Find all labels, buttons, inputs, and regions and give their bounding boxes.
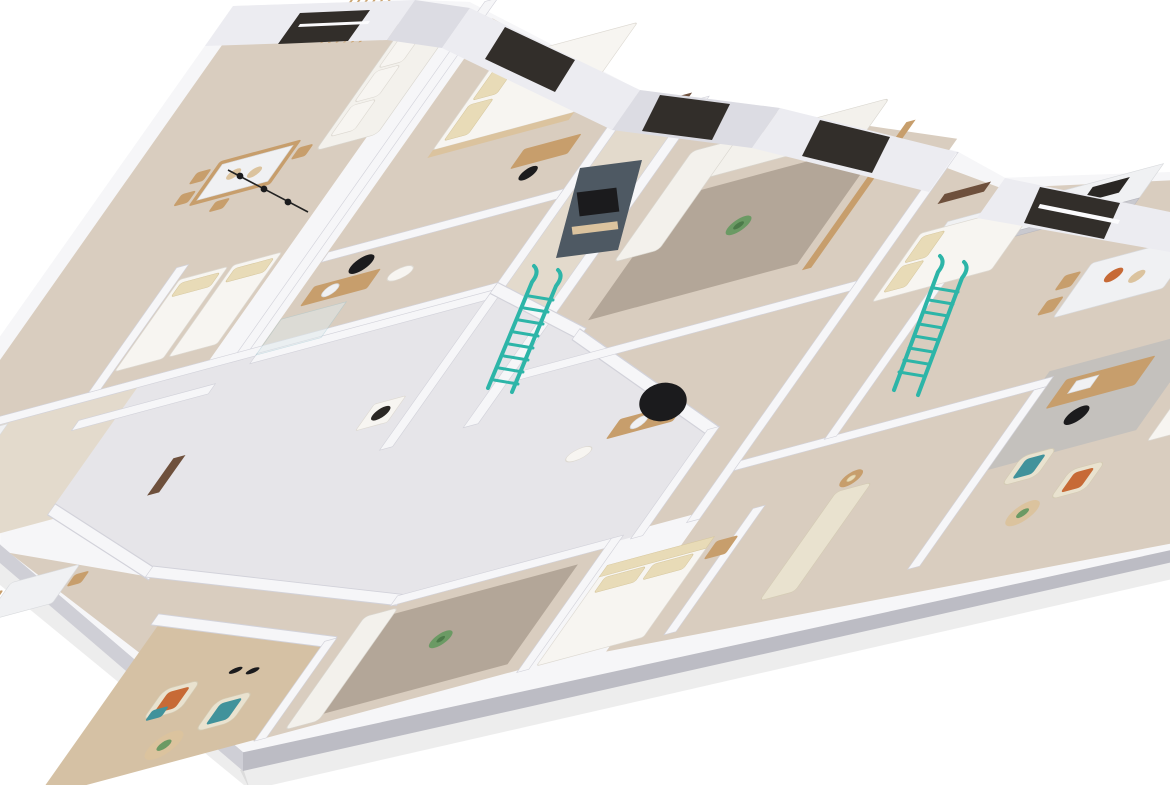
tv-screen	[577, 188, 620, 217]
pendant-bulb	[285, 199, 292, 206]
pendant-bulb	[261, 186, 268, 193]
pendant-bulb	[237, 173, 244, 180]
floorplan-render	[0, 0, 1170, 785]
floorplan-svg	[0, 0, 1170, 785]
plan	[0, 0, 1170, 785]
